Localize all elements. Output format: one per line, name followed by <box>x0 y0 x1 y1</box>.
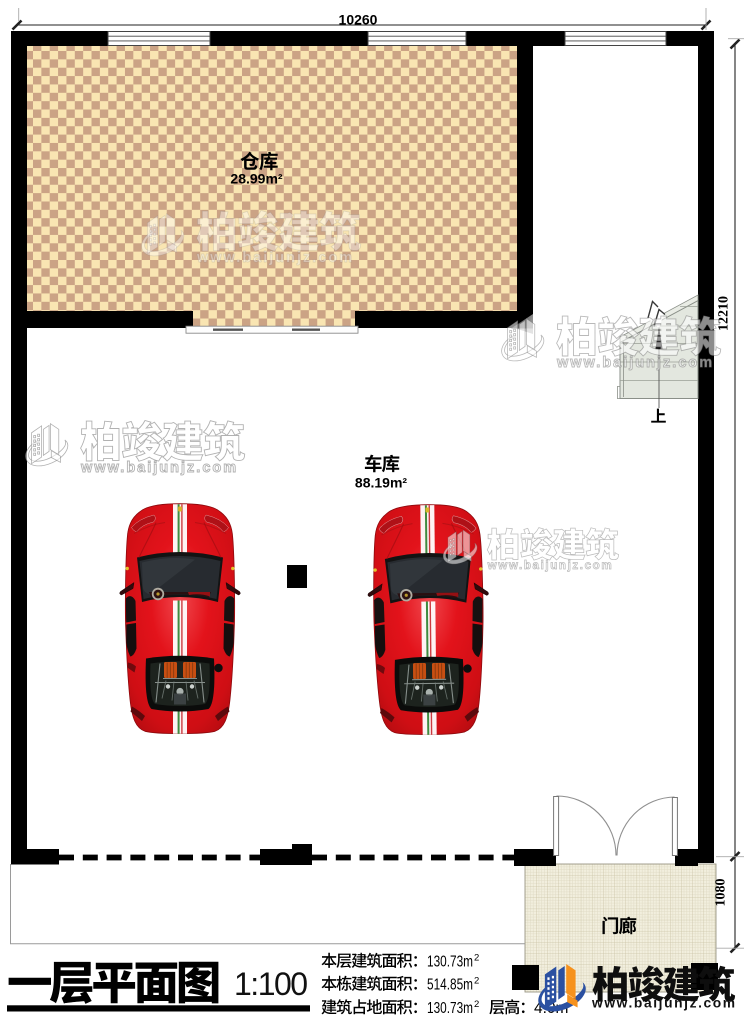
svg-text:10260: 10260 <box>339 12 378 28</box>
svg-text:130.73m: 130.73m <box>427 954 473 971</box>
svg-text:2: 2 <box>474 999 479 1010</box>
svg-text:www.baijunjz.com: www.baijunjz.com <box>591 996 737 1011</box>
svg-text:1:100: 1:100 <box>234 966 307 1002</box>
svg-text:88.19m²: 88.19m² <box>355 475 407 491</box>
svg-text:514.85m: 514.85m <box>427 977 473 994</box>
svg-text:130.73m: 130.73m <box>427 1000 473 1017</box>
svg-text:28.99m²: 28.99m² <box>230 171 282 187</box>
svg-text:2: 2 <box>474 976 479 987</box>
svg-text:2: 2 <box>474 953 479 964</box>
